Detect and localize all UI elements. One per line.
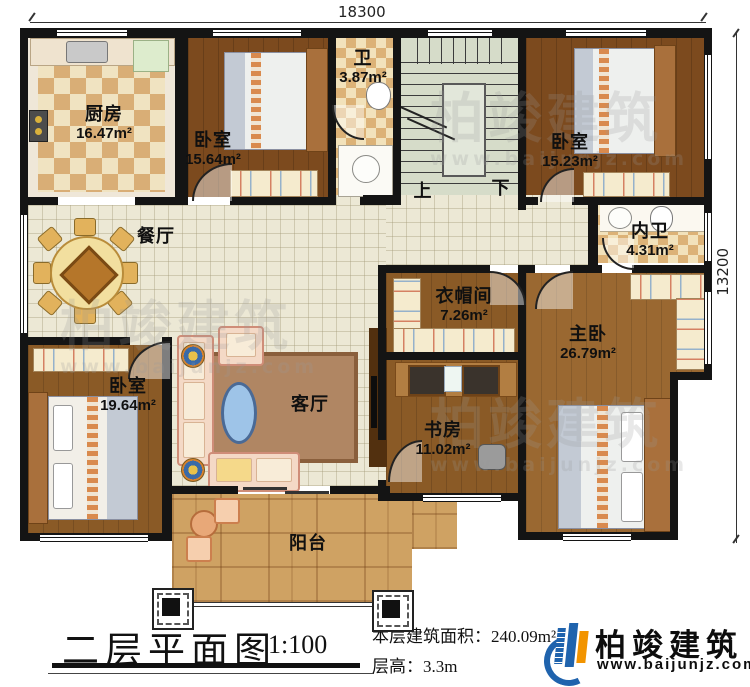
- bed-master: [558, 405, 646, 529]
- balcony-column: [152, 588, 194, 630]
- balcony-slider-leaf: [243, 487, 287, 490]
- bed-bottomleft-headboard: [28, 392, 48, 524]
- master-closet-top: [630, 274, 706, 300]
- room-label-bedroom-topright: 卧室15.23m²: [542, 132, 598, 170]
- dim-tick: [700, 12, 707, 21]
- study-chair: [462, 365, 500, 396]
- wall-bedroom-tr-bottom-l: [526, 197, 538, 205]
- room-label-bedroom-bottomleft: 卧室19.64m²: [100, 376, 156, 414]
- wall-stairs-stub: [363, 195, 401, 203]
- staircase: [401, 38, 518, 195]
- window-study-bottom: [423, 494, 501, 502]
- wall-corridor-bottom-a: [378, 265, 490, 273]
- bath-sink-icon: [352, 155, 380, 183]
- wall-inner-bath-left: [588, 203, 598, 270]
- bed-topright-headboard: [654, 45, 676, 157]
- window-master-bottom: [563, 533, 631, 541]
- wall-kitchen-bottom-r: [135, 197, 188, 205]
- room-label-living: 客厅: [291, 394, 329, 415]
- wall-kitchen-right: [175, 28, 188, 205]
- wall-bedroom-top-bottom: [230, 197, 336, 205]
- room-label-dining: 餐厅: [137, 226, 175, 247]
- title-underline-thick: [52, 663, 360, 668]
- title-underline-thin: [48, 673, 374, 674]
- coffee-table: [221, 382, 257, 444]
- wall-stairs-right: [518, 28, 526, 210]
- balcony-slider-leaf: [285, 491, 329, 494]
- dresser-bedroom-top: [230, 170, 318, 197]
- room-label-master: 主卧26.79m²: [560, 324, 616, 362]
- dimension-right-value: 13200: [714, 248, 732, 296]
- floor-plan: 上 下: [0, 0, 750, 687]
- kitchen-sink: [66, 41, 108, 63]
- room-label-study: 书房11.02m²: [415, 420, 470, 458]
- logo-icon: [543, 622, 591, 676]
- balcony-chair: [186, 536, 212, 562]
- toilet-icon: [366, 82, 391, 110]
- wall-cloak-study: [386, 352, 518, 360]
- wall-bedroom-bl-top: [20, 337, 130, 345]
- wall-corridor-bottom-b: [525, 265, 535, 273]
- wall-kitchen-bottom-l: [20, 197, 58, 205]
- wall-innerbath-bottom: [632, 265, 712, 273]
- dimension-line-top: [30, 22, 706, 23]
- dresser-bedroom-topright: [583, 172, 670, 197]
- wall-study-left-lower: [378, 480, 386, 501]
- study-pad: [444, 366, 462, 392]
- office-chair: [478, 444, 506, 470]
- wall-corridor-bottom-c: [570, 265, 602, 273]
- window-kitchen: [57, 29, 127, 37]
- window-dining-left: [20, 215, 28, 333]
- floor-height-value: 3.3m: [423, 657, 457, 676]
- bed-master-headboard: [644, 398, 672, 532]
- fridge: [133, 40, 169, 72]
- stair-up-label: 上: [414, 181, 433, 202]
- dining-chair: [33, 262, 51, 284]
- dimension-top-value: 18300: [338, 3, 386, 21]
- wall-master-left: [518, 265, 526, 540]
- room-label-kitchen: 厨房16.47m²: [76, 104, 132, 142]
- dresser-bedroom-bottomleft: [33, 348, 129, 372]
- floor-height-label: 层高：: [372, 657, 423, 676]
- master-closet-right: [676, 298, 706, 370]
- bed-top-headboard: [306, 48, 328, 152]
- room-label-bedroom-top: 卧室15.64m²: [185, 130, 241, 168]
- stair-upper-flight: [417, 38, 503, 64]
- floor-medallion: [181, 344, 205, 368]
- cloakroom-wardrobe-bottom: [393, 328, 515, 354]
- cloakroom-wardrobe-left: [393, 278, 421, 332]
- stair-void: [442, 83, 486, 177]
- dining-chair: [74, 218, 96, 236]
- window-bedroom-bl-bottom: [40, 534, 148, 542]
- room-label-inner-bath: 内卫4.31m²: [626, 221, 674, 259]
- wall-stairs-left: [393, 28, 401, 203]
- study-chair: [408, 365, 446, 396]
- floor-height-line: 层高：3.3m: [372, 652, 457, 677]
- stove: [29, 110, 48, 142]
- dim-tick: [28, 12, 35, 21]
- window-bedroom-top: [213, 29, 301, 37]
- wall-tv: [378, 265, 386, 440]
- window-stairs: [428, 29, 492, 37]
- floor-medallion: [181, 458, 205, 482]
- armchair: [218, 326, 264, 366]
- window-inner-bath: [704, 213, 712, 261]
- balcony-column: [372, 590, 414, 632]
- room-label-bath: 卫3.87m²: [339, 48, 387, 86]
- dimension-line-right: [736, 33, 737, 543]
- window-bedroom-topright: [566, 29, 646, 37]
- window-bedroom-tr-right: [704, 55, 712, 159]
- company-logo: 柏竣建筑 www.baijunjz.com: [543, 618, 743, 680]
- room-label-balcony: 阳台: [289, 533, 327, 554]
- balcony-chair: [214, 498, 240, 524]
- window-master-right: [704, 292, 712, 364]
- plan-scale: 1:100: [268, 630, 327, 660]
- wall-bottom-living-l: [162, 486, 238, 494]
- balcony-right-part: [412, 501, 457, 549]
- wall-right-lower: [670, 372, 678, 540]
- dining-table: [50, 236, 124, 310]
- room-label-cloakroom: 衣帽间7.26m²: [436, 286, 493, 324]
- stair-down-label: 下: [492, 178, 511, 199]
- logo-url: www.baijunjz.com: [597, 656, 750, 673]
- bed-bottomleft: [48, 396, 138, 520]
